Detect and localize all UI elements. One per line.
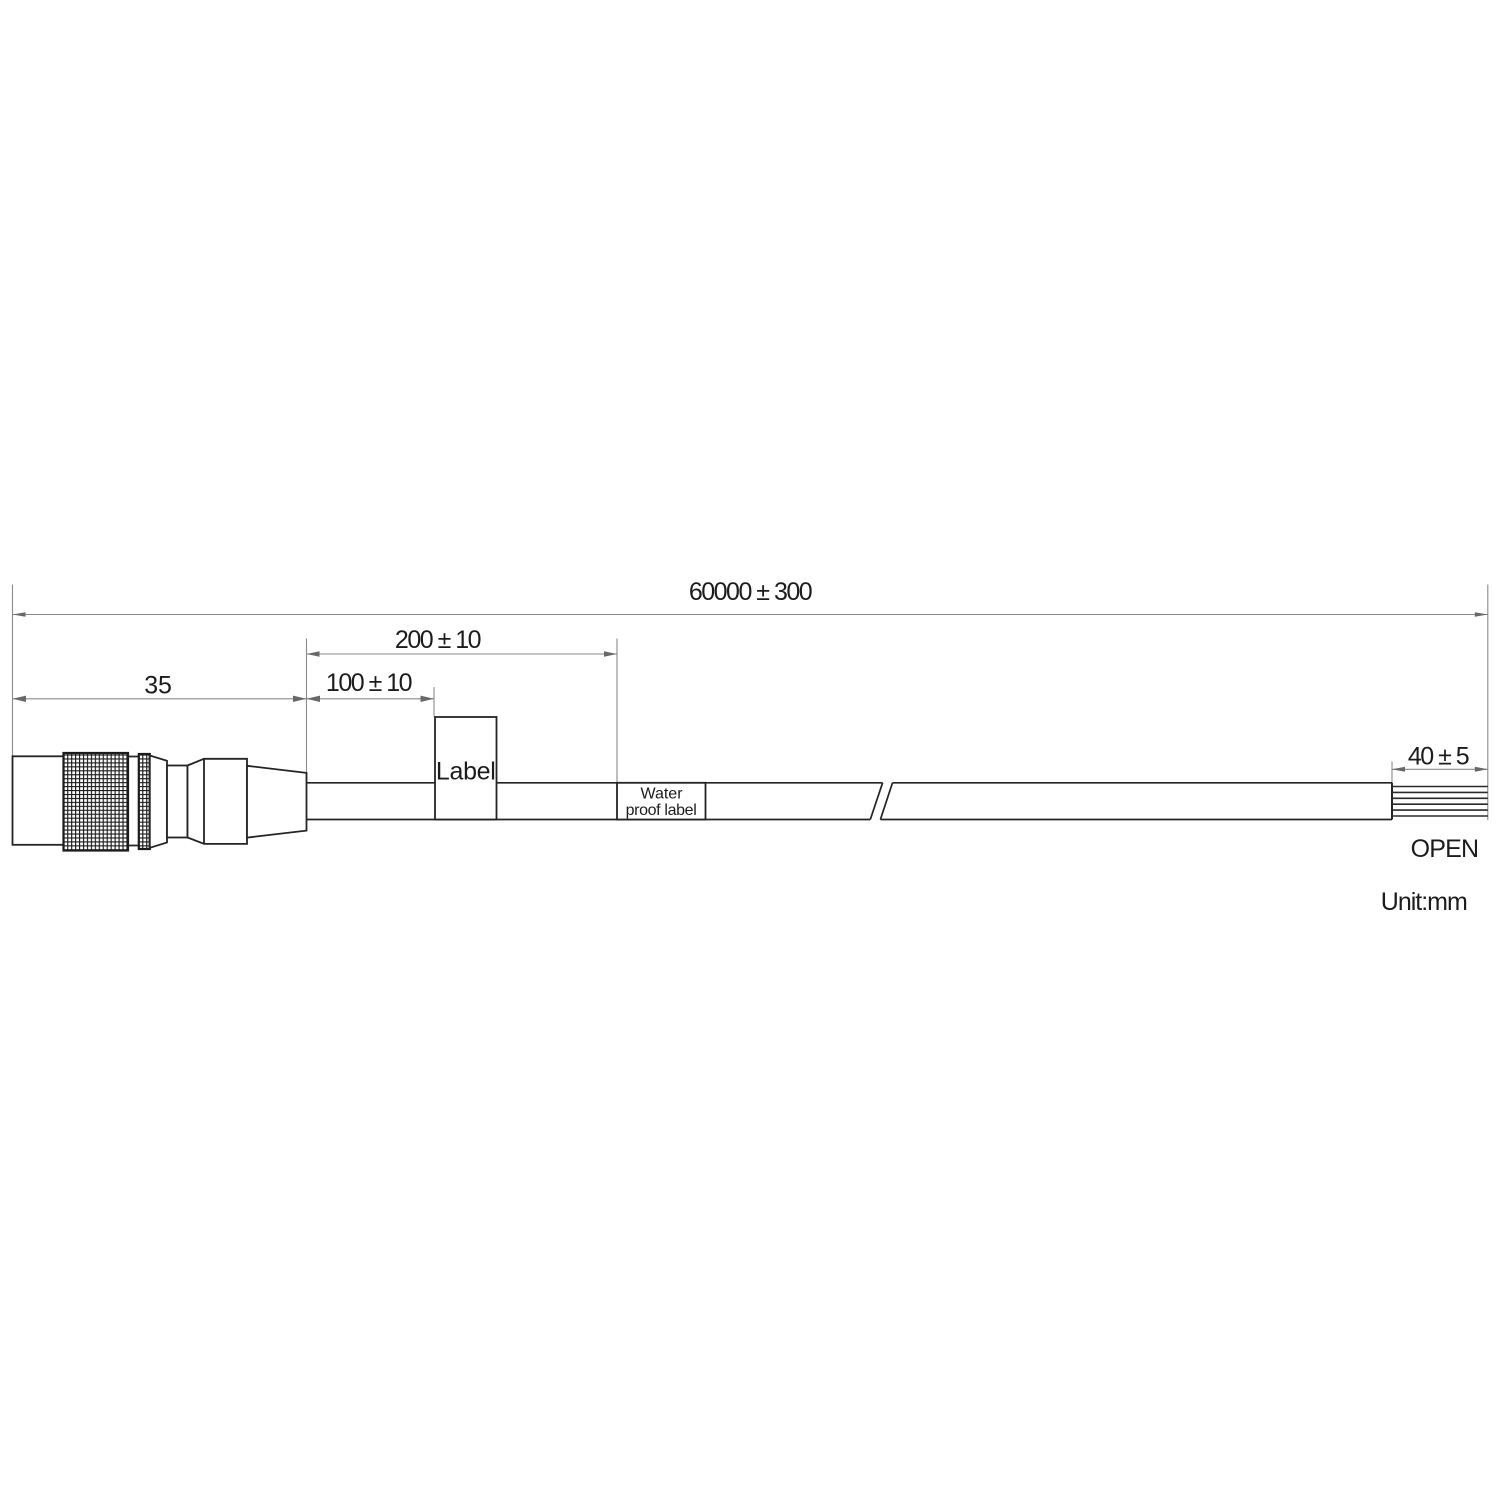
svg-text:200 ± 10: 200 ± 10	[395, 626, 481, 654]
svg-text:40 ± 5: 40 ± 5	[1408, 743, 1469, 771]
svg-text:100 ± 10: 100 ± 10	[326, 669, 412, 697]
svg-text:Unit:mm: Unit:mm	[1381, 888, 1467, 916]
svg-text:Water: Water	[640, 785, 683, 802]
svg-text:Label: Label	[436, 758, 496, 786]
svg-text:35: 35	[144, 672, 171, 700]
svg-text:proof label: proof label	[626, 802, 697, 819]
svg-text:60000 ± 300: 60000 ± 300	[689, 578, 812, 606]
svg-text:OPEN: OPEN	[1411, 835, 1479, 863]
